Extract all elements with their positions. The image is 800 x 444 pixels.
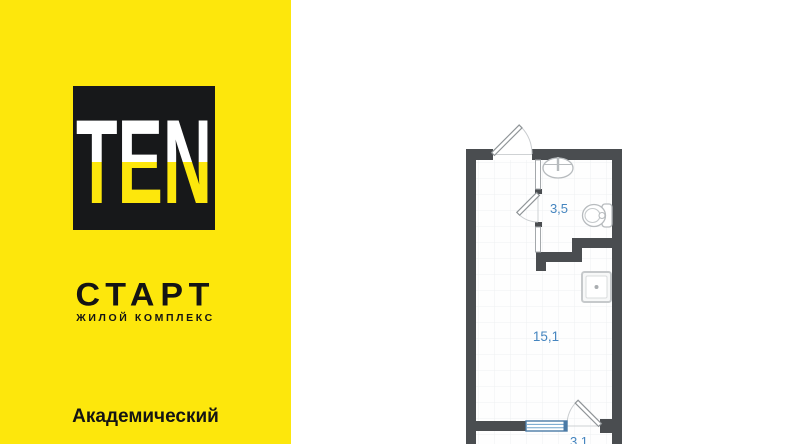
jamb-cap-bottom <box>535 222 542 227</box>
wall-right <box>612 149 622 444</box>
wall-top-right <box>532 149 622 160</box>
wall-bottom-left <box>466 421 526 431</box>
room-area-label-main-room: 15,1 <box>533 329 559 344</box>
ten-logo-text: TEN <box>76 95 212 229</box>
sink-icon <box>543 157 573 178</box>
room-area-label-bathroom: 3,5 <box>550 201 568 216</box>
wall-top-left <box>466 149 493 160</box>
wall-balcony-door-stub <box>600 419 612 433</box>
wall-left <box>466 149 476 444</box>
complex-name: СТАРТ <box>0 277 291 314</box>
toilet-icon <box>583 204 613 227</box>
wall-bathroom-step-upper <box>572 238 612 248</box>
complex-subtitle: ЖИЛОЙ КОМПЛЕКС <box>0 312 291 324</box>
ten-logo: TEN <box>73 86 215 230</box>
washer-icon <box>582 272 611 302</box>
brand-panel: TEN СТАРТ ЖИЛОЙ КОМПЛЕКС Академический <box>0 0 291 444</box>
entrance-door <box>492 125 532 155</box>
district-name: Академический <box>0 406 291 428</box>
wall-niche-stub <box>536 262 546 271</box>
window <box>526 421 567 431</box>
room-area-label-balcony: 3,1 <box>570 434 588 444</box>
